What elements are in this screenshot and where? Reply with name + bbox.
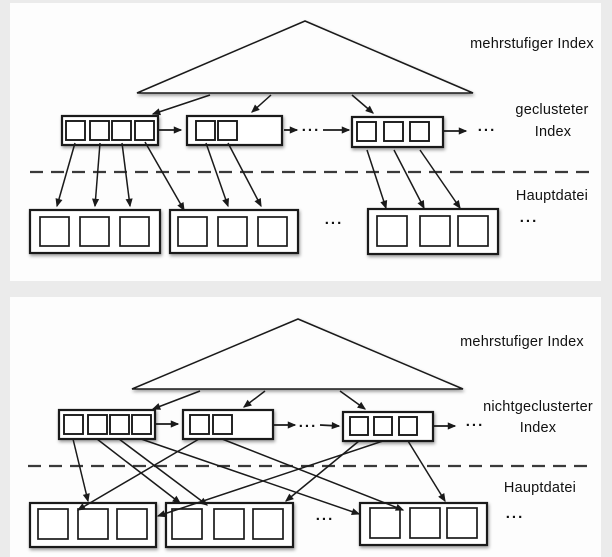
data-record [78,509,108,539]
data-record [253,509,283,539]
index-entry [135,121,154,140]
multilevel-index-label: mehrstufiger Index [470,36,594,52]
data-record [420,216,450,246]
index-entry [350,417,368,435]
index-entry [399,417,417,435]
entry-pointer-arrow [367,150,386,208]
data-record [258,217,287,246]
data-record [178,217,207,246]
index-entry [374,417,392,435]
triangle-to-block-arrow [153,95,210,114]
entry-pointer-arrow [145,142,184,210]
index-entry [64,415,83,434]
data-record [377,216,407,246]
data-row-end-ellipsis: ... [520,209,539,226]
multilevel-index-label: mehrstufiger Index [460,334,584,350]
entry-pointer-arrow [78,439,199,510]
index-entry [110,415,129,434]
data-record [218,217,247,246]
data-row-ellipsis: ... [316,507,335,524]
triangle-to-block-arrow [153,391,200,409]
main-file-label: Hauptdatei [504,480,576,496]
diagram-canvas [0,0,612,557]
screenshot-root: mehrstufiger Index geclusteter Index Hau… [0,0,612,557]
multilevel-index-triangle [137,21,473,93]
main-file-label: Hauptdatei [516,188,588,204]
data-record [410,508,440,538]
data-row-end-ellipsis: ... [506,505,525,522]
entry-pointer-arrow [228,143,261,206]
data-row-ellipsis: ... [325,211,344,228]
entry-pointer-arrow [206,143,228,206]
entry-pointer-arrow [286,441,359,501]
data-record [214,509,244,539]
multilevel-index-triangle [132,319,463,389]
index-entry [218,121,237,140]
data-record [80,217,109,246]
block-chain-arrow [320,425,339,426]
entry-pointer-arrow [57,143,75,206]
index-type-label-line2: Index [520,420,556,436]
data-record [38,509,68,539]
index-type-label-line2: Index [535,124,571,140]
index-row-end-ellipsis: ... [478,118,497,135]
triangle-to-block-arrow [352,95,373,113]
index-entry [132,415,151,434]
data-record [458,216,488,246]
entry-pointer-arrow [95,143,100,206]
triangle-to-block-arrow [244,391,265,407]
index-row-end-ellipsis: ... [466,413,485,430]
triangle-to-block-arrow [340,391,365,409]
index-entry [384,122,403,141]
clustered-index-diagram [30,21,597,254]
index-entry [190,415,209,434]
entry-pointer-arrow [122,143,130,206]
index-type-label-line1: nichtgeclusterter [483,399,593,415]
entry-pointer-arrow [420,150,460,208]
index-entry [196,121,215,140]
entry-pointer-arrow [119,439,207,505]
index-row-ellipsis: ... [302,118,321,135]
index-type-label-line1: geclusteter [515,102,588,118]
triangle-to-block-arrow [252,95,271,112]
data-record [447,508,477,538]
entry-pointer-arrow [408,441,445,501]
index-entry [90,121,109,140]
index-entry [66,121,85,140]
entry-pointer-arrow [394,150,424,208]
data-record [370,508,400,538]
data-record [120,217,149,246]
index-entry [88,415,107,434]
index-entry [357,122,376,141]
data-record [117,509,147,539]
data-record [172,509,202,539]
entry-pointer-arrow [222,439,403,510]
index-entry [112,121,131,140]
index-entry [410,122,429,141]
index-row-ellipsis: ... [299,414,318,431]
index-entry [213,415,232,434]
data-record [40,217,69,246]
entry-pointer-arrow [73,439,88,501]
